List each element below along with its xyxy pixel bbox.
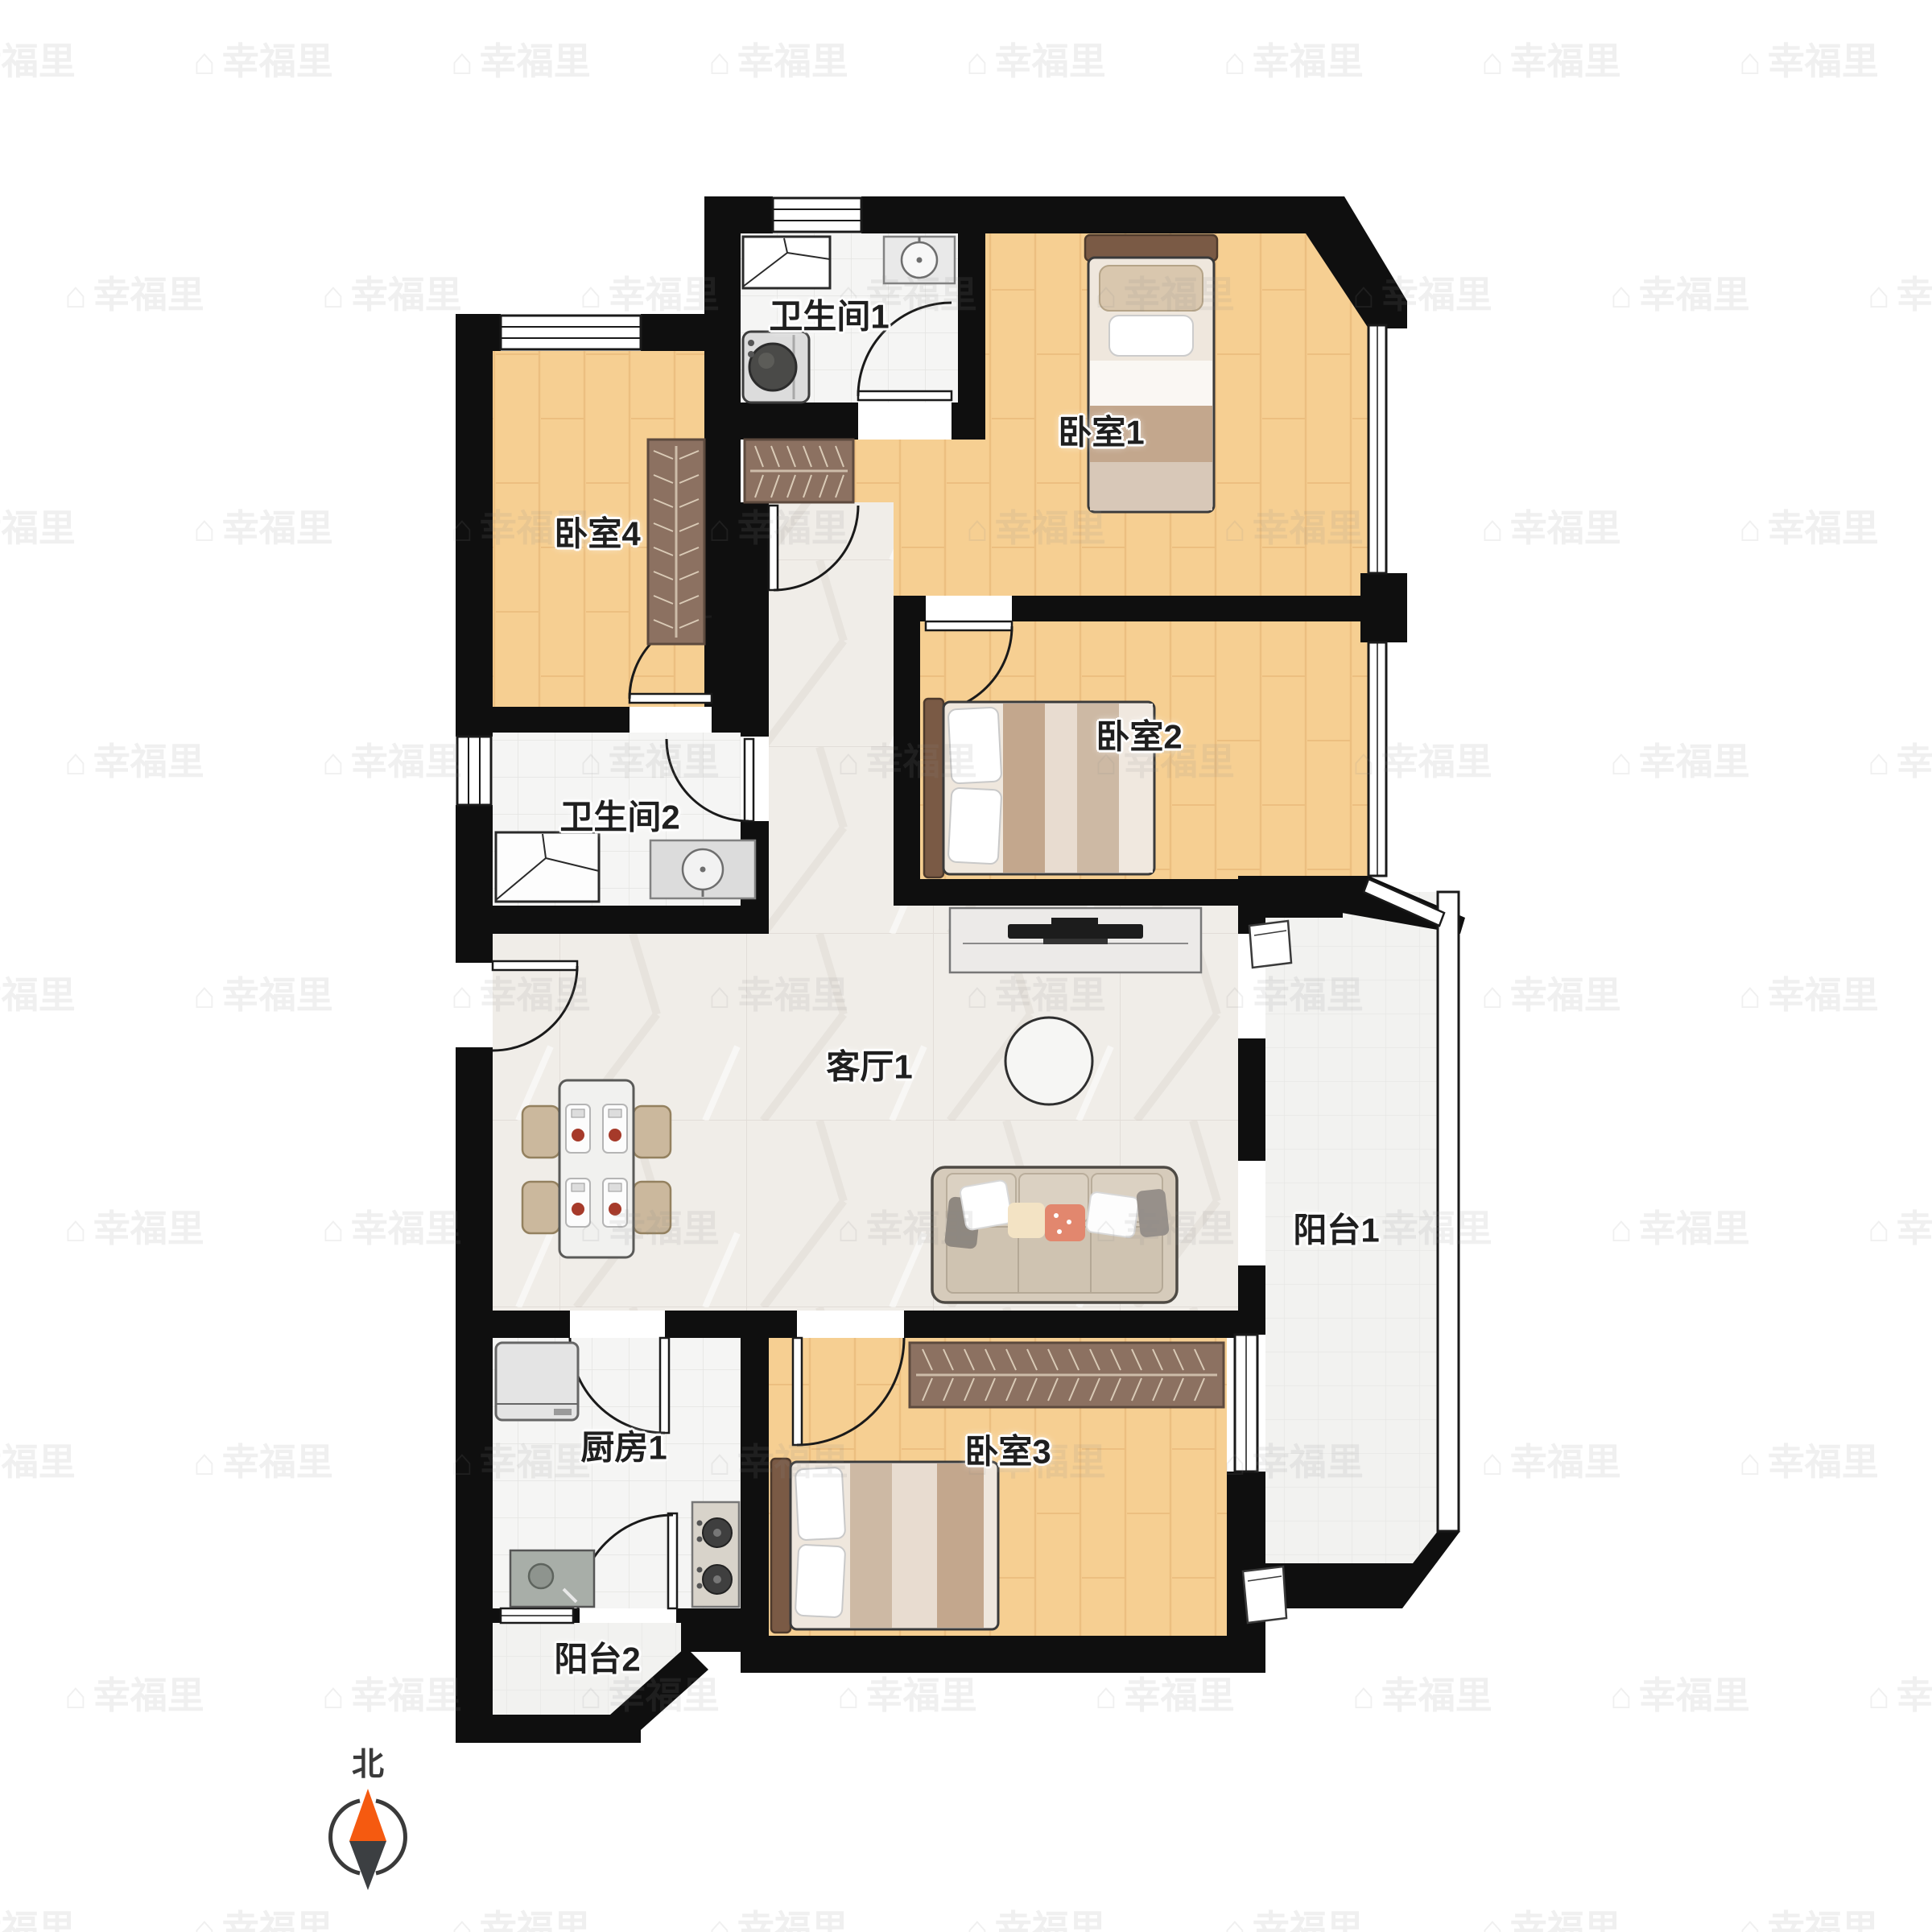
bedroom4-wardrobe-icon bbox=[648, 440, 704, 644]
bathroom1-label: 卫生间1 bbox=[769, 290, 889, 339]
fridge-icon bbox=[496, 1343, 578, 1420]
bedroom4-label: 卧室4 bbox=[554, 507, 640, 556]
kitchen-label: 厨房1 bbox=[580, 1421, 667, 1470]
tv-console-icon bbox=[950, 908, 1201, 972]
bedroom2-label: 卧室2 bbox=[1096, 710, 1182, 759]
bedroom4-window bbox=[501, 316, 641, 349]
bedroom1-label: 卧室1 bbox=[1058, 406, 1144, 455]
hallway-floor bbox=[769, 502, 894, 906]
washing-machine-icon bbox=[743, 332, 809, 402]
bedroom1-wardrobe-icon bbox=[745, 440, 853, 502]
floorplan-page: 卫生间1 卧室1 卧室4 卫生间2 卧室2 客厅1 阳台1 厨房1 卧室3 阳台… bbox=[0, 0, 1932, 1932]
bedroom1-window bbox=[1368, 325, 1386, 573]
bathroom1-sink-icon bbox=[884, 237, 955, 283]
living-room-label: 客厅1 bbox=[826, 1040, 912, 1089]
bathtub-icon bbox=[743, 237, 830, 288]
shower-icon bbox=[496, 832, 599, 902]
bathroom2-label: 卫生间2 bbox=[559, 791, 679, 840]
bedroom3-wardrobe-icon bbox=[910, 1343, 1224, 1407]
bedroom3-bed-icon bbox=[771, 1459, 998, 1633]
compass-north-needle bbox=[349, 1789, 386, 1841]
kitchen-window bbox=[501, 1608, 573, 1623]
bedroom3-window bbox=[1235, 1335, 1257, 1472]
compass-icon bbox=[331, 1789, 406, 1890]
kitchen-sink-icon bbox=[510, 1550, 594, 1607]
sofa-icon bbox=[932, 1167, 1177, 1302]
stove-icon bbox=[692, 1502, 739, 1607]
bathroom2-window bbox=[457, 737, 491, 805]
bedroom2-window bbox=[1368, 642, 1386, 876]
bathroom2-sink-icon bbox=[650, 840, 755, 898]
balcony1-label: 阳台1 bbox=[1293, 1203, 1379, 1253]
bathroom1-window bbox=[773, 198, 861, 232]
floorplan-drawing bbox=[0, 0, 1932, 1932]
compass-north-label: 北 bbox=[352, 1738, 384, 1785]
balcony2-label: 阳台2 bbox=[554, 1633, 640, 1682]
bedroom1-bed-icon bbox=[1085, 235, 1217, 512]
compass-south-needle bbox=[349, 1841, 386, 1890]
bedroom3-label: 卧室3 bbox=[964, 1425, 1051, 1474]
round-table-icon bbox=[1005, 1018, 1092, 1104]
